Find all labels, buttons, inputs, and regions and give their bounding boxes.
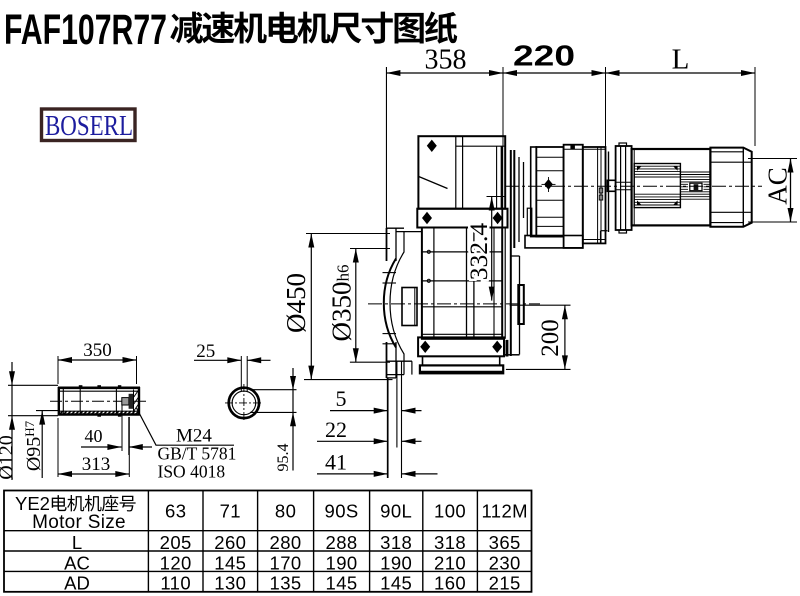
svg-text:358: 358 xyxy=(425,45,467,76)
svg-text:112M: 112M xyxy=(481,501,528,522)
svg-text:215: 215 xyxy=(489,573,521,594)
svg-text:25: 25 xyxy=(196,341,215,362)
svg-text:L: L xyxy=(672,44,690,76)
svg-text:AC: AC xyxy=(64,552,90,573)
svg-text:120: 120 xyxy=(160,552,192,573)
svg-text:230: 230 xyxy=(489,552,521,573)
svg-text:220: 220 xyxy=(513,41,575,73)
svg-text:63: 63 xyxy=(165,501,186,522)
svg-text:L: L xyxy=(72,532,82,553)
svg-text:GB/T 5781: GB/T 5781 xyxy=(158,444,237,464)
svg-text:AC: AC xyxy=(763,167,793,205)
svg-text:Motor Size: Motor Size xyxy=(32,512,126,533)
svg-text:130: 130 xyxy=(214,573,246,594)
svg-text:FAF107R77: FAF107R77 xyxy=(4,6,167,54)
svg-text:5: 5 xyxy=(336,386,347,411)
svg-text:ISO 4018: ISO 4018 xyxy=(158,462,226,482)
svg-text:41: 41 xyxy=(325,450,347,475)
svg-text:110: 110 xyxy=(160,573,191,594)
svg-text:135: 135 xyxy=(270,573,302,594)
svg-text:Ø450: Ø450 xyxy=(281,273,311,333)
svg-text:100: 100 xyxy=(434,501,466,522)
svg-text:350: 350 xyxy=(83,340,112,361)
svg-text:332.4: 332.4 xyxy=(464,223,493,281)
svg-text:BOSERL: BOSERL xyxy=(45,111,133,142)
svg-text:Ø120: Ø120 xyxy=(0,435,18,479)
svg-text:190: 190 xyxy=(380,552,412,573)
svg-text:90S: 90S xyxy=(325,501,359,522)
svg-text:95.4: 95.4 xyxy=(275,444,292,472)
svg-text:145: 145 xyxy=(326,573,358,594)
svg-text:145: 145 xyxy=(380,573,412,594)
svg-text:AD: AD xyxy=(64,573,90,594)
svg-text:80: 80 xyxy=(275,501,296,522)
svg-text:313: 313 xyxy=(82,454,111,475)
svg-text:280: 280 xyxy=(270,532,302,553)
svg-text:288: 288 xyxy=(326,532,358,553)
svg-text:170: 170 xyxy=(270,552,302,573)
svg-text:160: 160 xyxy=(434,573,466,594)
svg-text:260: 260 xyxy=(214,532,246,553)
svg-text:90L: 90L xyxy=(380,501,412,522)
svg-text:200: 200 xyxy=(537,319,564,357)
svg-text:40: 40 xyxy=(85,426,103,446)
svg-text:190: 190 xyxy=(326,552,358,573)
svg-text:210: 210 xyxy=(434,552,466,573)
svg-text:365: 365 xyxy=(489,532,521,553)
svg-text:318: 318 xyxy=(434,532,466,553)
svg-text:145: 145 xyxy=(214,552,246,573)
svg-text:318: 318 xyxy=(380,532,412,553)
svg-text:205: 205 xyxy=(160,532,192,553)
svg-text:71: 71 xyxy=(220,501,241,522)
svg-text:22: 22 xyxy=(325,417,347,442)
svg-text:YE2: YE2 xyxy=(15,493,50,514)
